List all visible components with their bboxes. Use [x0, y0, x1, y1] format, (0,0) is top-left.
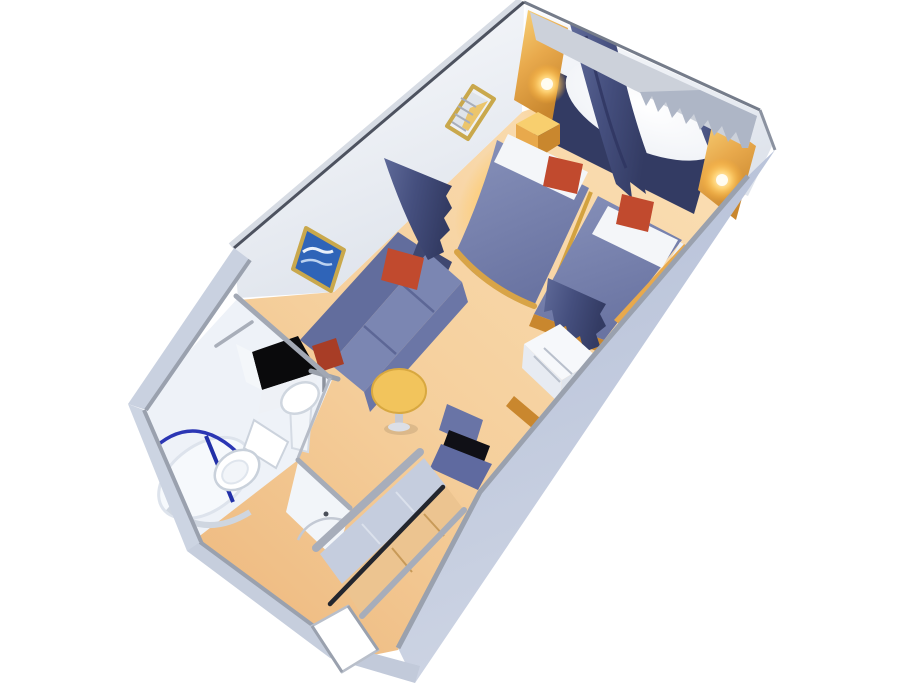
floorplan-image: Isometric 3D cutaway rendering of a crui… [0, 0, 900, 700]
bathroom-door-handle [324, 512, 329, 517]
table-base [388, 423, 410, 432]
table-top [372, 369, 426, 413]
sconce-right-core [716, 174, 728, 186]
stateroom-3d-floorplan: Isometric 3D cutaway rendering of a crui… [0, 0, 900, 700]
sconce-left-core [541, 78, 553, 90]
